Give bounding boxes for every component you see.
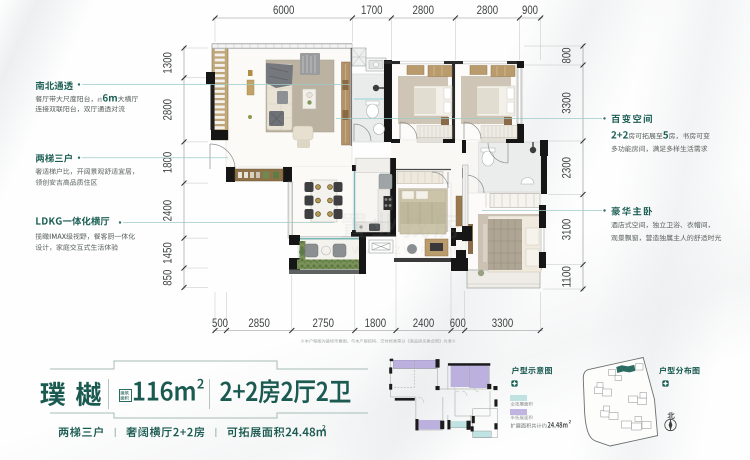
svg-text:500: 500 — [212, 316, 228, 330]
svg-text:2800: 2800 — [477, 3, 499, 17]
svg-text:3300: 3300 — [560, 92, 574, 114]
svg-text:6000: 6000 — [273, 3, 295, 17]
svg-text:2800: 2800 — [413, 3, 435, 17]
svg-text:3300: 3300 — [492, 316, 514, 330]
svg-text:600: 600 — [450, 316, 466, 330]
svg-text:1700: 1700 — [361, 3, 383, 17]
svg-text:3100: 3100 — [560, 218, 574, 240]
svg-text:2850: 2850 — [248, 316, 270, 330]
svg-text:1300: 1300 — [161, 52, 175, 74]
svg-text:2400: 2400 — [413, 316, 435, 330]
svg-text:800: 800 — [560, 47, 574, 63]
svg-text:2400: 2400 — [161, 200, 175, 222]
svg-text:1100: 1100 — [560, 266, 574, 288]
svg-text:1800: 1800 — [161, 151, 175, 173]
svg-text:850: 850 — [161, 269, 175, 285]
svg-text:1450: 1450 — [161, 242, 175, 264]
svg-text:2750: 2750 — [313, 316, 335, 330]
svg-text:2300: 2300 — [560, 157, 574, 179]
svg-text:1800: 1800 — [365, 316, 387, 330]
svg-text:2800: 2800 — [161, 99, 175, 121]
svg-text:900: 900 — [522, 3, 538, 17]
